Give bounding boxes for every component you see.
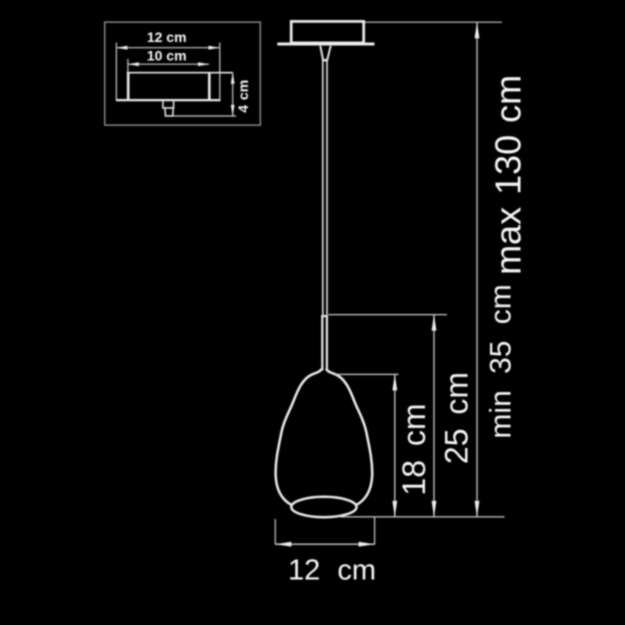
svg-text:25 cm: 25 cm: [439, 372, 475, 464]
svg-text:max 130 cm: max 130 cm: [488, 75, 529, 275]
svg-text:10 cm: 10 cm: [147, 48, 187, 64]
svg-text:18 cm: 18 cm: [396, 403, 432, 495]
svg-text:4 cm: 4 cm: [235, 80, 251, 113]
svg-text:min 35 cm: min 35 cm: [485, 284, 518, 438]
svg-text:12 cm: 12 cm: [288, 555, 376, 587]
svg-text:12 cm: 12 cm: [147, 29, 187, 45]
